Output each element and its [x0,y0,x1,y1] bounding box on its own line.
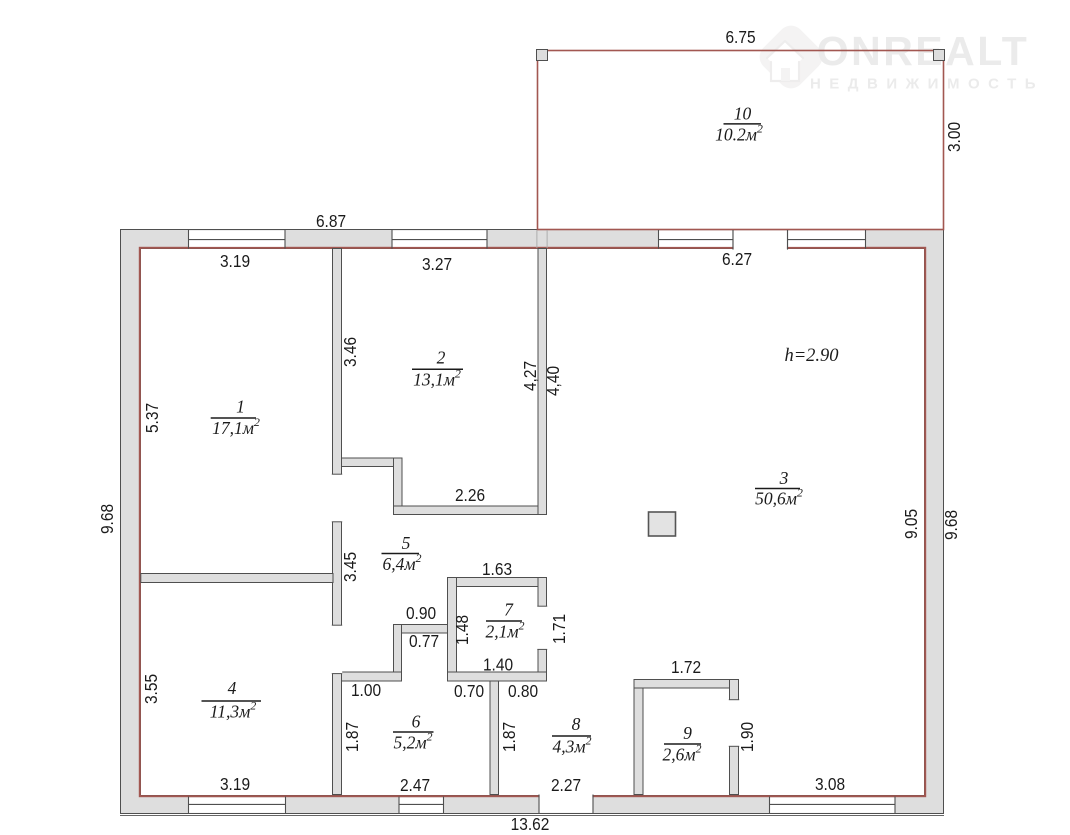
svg-text:4,27: 4,27 [520,361,540,391]
svg-text:2: 2 [437,348,446,368]
svg-text:9.05: 9.05 [901,509,921,539]
svg-text:1.48: 1.48 [452,615,472,645]
svg-text:9.68: 9.68 [941,510,961,540]
svg-text:0.90: 0.90 [406,603,436,623]
svg-text:2,6м2: 2,6м2 [662,742,701,765]
svg-text:3.08: 3.08 [815,774,845,794]
svg-text:0.77: 0.77 [409,631,439,651]
svg-text:2.26: 2.26 [455,485,485,505]
svg-text:13.62: 13.62 [511,814,550,834]
svg-text:4,40: 4,40 [543,366,563,396]
svg-text:1.90: 1.90 [737,722,757,752]
svg-text:1.87: 1.87 [499,722,519,752]
svg-text:3: 3 [779,468,789,488]
svg-text:9.68: 9.68 [97,504,117,534]
svg-text:6: 6 [412,712,421,732]
svg-text:6.87: 6.87 [316,211,346,231]
svg-text:2.27: 2.27 [551,775,581,795]
svg-text:8: 8 [572,714,581,734]
svg-text:НЕДВИЖИМОСТЬ: НЕДВИЖИМОСТЬ [810,76,1044,93]
svg-text:4: 4 [228,678,237,698]
svg-text:2.47: 2.47 [400,775,430,795]
svg-text:5: 5 [402,533,411,553]
svg-text:1.72: 1.72 [671,657,701,677]
svg-text:1.40: 1.40 [483,654,513,674]
svg-text:11,3м2: 11,3м2 [210,699,257,722]
svg-text:5,2м2: 5,2м2 [393,730,432,753]
svg-text:1.87: 1.87 [342,722,362,752]
svg-text:3.46: 3.46 [340,337,360,367]
svg-text:1.00: 1.00 [351,680,381,700]
svg-text:9: 9 [683,723,692,743]
svg-text:10: 10 [734,104,752,124]
svg-text:6.27: 6.27 [722,249,752,269]
svg-text:3.27: 3.27 [422,254,452,274]
svg-text:3.00: 3.00 [944,122,964,152]
svg-text:10.2м2: 10.2м2 [715,122,763,145]
svg-text:7: 7 [504,600,514,620]
svg-text:4,3м2: 4,3м2 [552,734,591,757]
svg-text:2,1м2: 2,1м2 [485,619,524,642]
svg-text:5.37: 5.37 [142,403,162,433]
svg-text:50,6м2: 50,6м2 [755,486,803,509]
svg-text:6.75: 6.75 [725,27,755,47]
svg-text:0.80: 0.80 [508,681,538,701]
svg-text:17,1м2: 17,1м2 [212,415,260,438]
svg-text:0.70: 0.70 [454,681,484,701]
svg-text:3.19: 3.19 [220,774,250,794]
svg-text:3.19: 3.19 [220,251,250,271]
svg-text:1.63: 1.63 [482,559,512,579]
svg-text:6,4м2: 6,4м2 [382,551,421,574]
svg-text:3.45: 3.45 [340,552,360,582]
svg-text:13,1м2: 13,1м2 [413,367,461,390]
svg-text:1.71: 1.71 [549,614,569,644]
svg-text:h=2.90: h=2.90 [784,346,839,366]
svg-text:1: 1 [236,397,245,417]
svg-text:3.55: 3.55 [141,674,161,704]
